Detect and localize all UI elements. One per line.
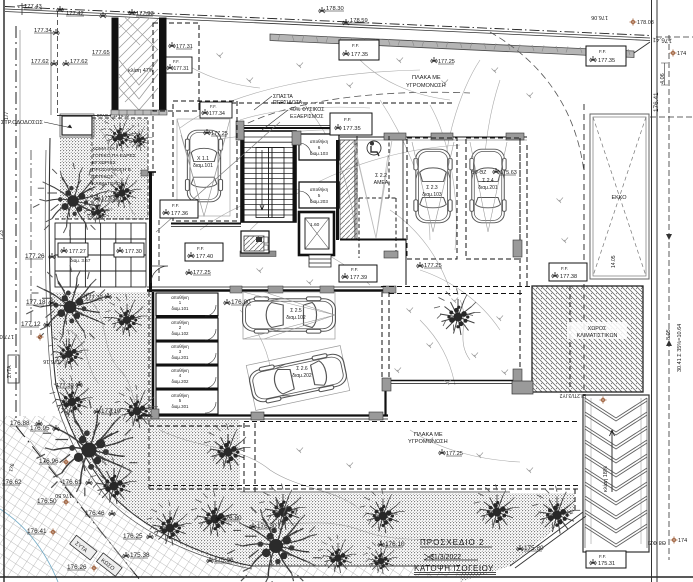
svg-text:διαμ.102: διαμ.102 — [286, 315, 306, 321]
svg-text:177.35: 177.35 — [598, 58, 615, 64]
svg-text:Σ 2.4: Σ 2.4 — [482, 178, 494, 184]
svg-text:177.36: 177.36 — [171, 211, 188, 217]
svg-text:177.27: 177.27 — [69, 249, 86, 255]
svg-text:176.41: 176.41 — [653, 92, 660, 112]
svg-text:Σ 2.6: Σ 2.6 — [296, 366, 308, 372]
svg-text:Θ8 ΦΖΙ: Θ8 ΦΖΙ — [647, 539, 666, 545]
svg-text:F.F.: F.F. — [352, 43, 359, 48]
svg-text:F.F.: F.F. — [344, 117, 351, 123]
svg-text:176.41: 176.41 — [652, 36, 672, 44]
svg-text:174: 174 — [677, 51, 686, 57]
svg-text:F.F.: F.F. — [351, 267, 358, 272]
svg-text:176.50: 176.50 — [55, 492, 72, 498]
svg-text:177.34: 177.34 — [209, 111, 225, 117]
svg-text:177.31: 177.31 — [174, 66, 190, 72]
svg-text:ΧΩΡΟΣ: ΧΩΡΟΣ — [588, 326, 607, 332]
svg-text:5: 5 — [318, 193, 321, 198]
svg-text:F.F.: F.F. — [599, 554, 606, 559]
svg-text:7.23: 7.23 — [0, 230, 5, 240]
svg-text:Σ 2.3: Σ 2.3 — [426, 185, 438, 191]
svg-text:ΧΩΜΑ ΓΙΑ: ΧΩΜΑ ΓΙΑ — [92, 146, 115, 152]
svg-text:177.40: 177.40 — [196, 254, 213, 260]
svg-text:174: 174 — [678, 538, 687, 544]
svg-text:διαμ.202: διαμ.202 — [292, 373, 312, 379]
svg-text:κλίση 47%: κλίση 47% — [128, 68, 154, 74]
svg-text:1.60: 1.60 — [310, 222, 320, 228]
svg-text:αποθήκη: αποθήκη — [310, 186, 329, 192]
svg-text:διαμ.101: διαμ.101 — [193, 163, 213, 169]
svg-text:κλίση 18%: κλίση 18% — [603, 466, 609, 492]
svg-text:ΕΙ.2ΤΙ/3.ΙΥ2: ΕΙ.2ΤΙ/3.ΙΥ2 — [559, 392, 586, 398]
svg-text:177.00: 177.00 — [0, 333, 14, 339]
svg-text:ΥΓΡΟΜΟΝΩΣΗ: ΥΓΡΟΜΟΝΩΣΗ — [408, 439, 448, 445]
svg-text:αποθήκη: αποθήκη — [310, 138, 329, 144]
svg-text:F.F.: F.F. — [561, 266, 568, 271]
svg-text:30.41 Σ 35%=10.64: 30.41 Σ 35%=10.64 — [677, 324, 683, 372]
svg-text:διαμ.301: διαμ.301 — [171, 404, 189, 409]
svg-text:176.06: 176.06 — [591, 14, 608, 20]
svg-text:14.05: 14.05 — [611, 255, 617, 268]
svg-text:Θ9·ΘΖ: Θ9·ΘΖ — [471, 170, 486, 176]
svg-text:διαμ. 3.67: διαμ. 3.67 — [70, 258, 91, 263]
svg-text:F.F.: F.F. — [173, 59, 180, 64]
svg-text:ΣΥΤΑ: ΣΥΤΑ — [7, 365, 13, 378]
svg-text:F.F.: F.F. — [210, 104, 217, 109]
svg-text:διαμ.102: διαμ.102 — [171, 331, 189, 336]
svg-text:40% ΦΥΣΙΚΟΣ: 40% ΦΥΣΙΚΟΣ — [290, 107, 324, 113]
svg-text:ΥΓΡΟΜΟΝΩΣΗ: ΥΓΡΟΜΟΝΩΣΗ — [406, 83, 446, 89]
svg-text:Σ 2.2: Σ 2.2 — [375, 173, 387, 179]
svg-text:ΠΕΡΣΙΔΩΤΑ: ΠΕΡΣΙΔΩΤΑ — [273, 100, 302, 106]
svg-text:177.39: 177.39 — [350, 275, 367, 281]
svg-text:διαμ.103: διαμ.103 — [422, 192, 442, 198]
svg-text:ΚΑΤΟΨΗ ΙΣΟΓΕΙΟΥ: ΚΑΤΟΨΗ ΙΣΟΓΕΙΟΥ — [414, 564, 494, 573]
svg-text:διαμ.201: διαμ.201 — [171, 355, 189, 360]
svg-text:ΠΛΑΚΑ ΜΕ: ΠΛΑΚΑ ΜΕ — [412, 75, 441, 81]
svg-text:διαμ.202: διαμ.202 — [171, 379, 189, 384]
svg-text:ΕΞΑΕΡΙΣΜΟΣ: ΕΞΑΕΡΙΣΜΟΣ — [290, 114, 323, 120]
svg-text:177.30: 177.30 — [125, 249, 142, 255]
svg-text:διαμ.101: διαμ.101 — [171, 306, 189, 311]
svg-text:178.08: 178.08 — [637, 20, 654, 26]
svg-text:ΕΚΚΟ: ΕΚΚΟ — [611, 195, 627, 201]
svg-text:Χ 1.1: Χ 1.1 — [197, 156, 209, 162]
svg-text:177.38: 177.38 — [560, 274, 577, 280]
svg-text:ΤΟΠΙΚΟ ΠΑ ΕΔΡΕΣ: ΤΟΠΙΚΟ ΠΑ ΕΔΡΕΣ — [92, 153, 136, 159]
svg-text:ΠΛΑΚΑ ΜΕ: ΠΛΑΚΑ ΜΕ — [414, 432, 443, 438]
svg-text:8.05: 8.05 — [666, 329, 672, 340]
svg-text:177.35: 177.35 — [351, 52, 368, 58]
svg-text:177.35: 177.35 — [343, 126, 361, 132]
svg-text:Σ 2.5: Σ 2.5 — [290, 308, 302, 314]
svg-text:175.31: 175.31 — [598, 561, 615, 567]
svg-text:F.F.: F.F. — [599, 49, 606, 54]
svg-text:διαμ.201: διαμ.201 — [478, 185, 498, 191]
svg-text:διαμ.203: διαμ.203 — [310, 199, 328, 204]
svg-text:6: 6 — [318, 145, 321, 150]
svg-text:ΑΜΕΑ: ΑΜΕΑ — [374, 180, 389, 186]
svg-text:177: 177 — [4, 111, 10, 120]
svg-text:ΕΓΧΩΡΙΕΣ: ΕΓΧΩΡΙΕΣ — [92, 160, 116, 166]
svg-text:ΠΡΟΣΧΕΔΙΟ 2: ΠΡΟΣΧΕΔΙΟ 2 — [420, 538, 484, 547]
svg-text:διαμ.103: διαμ.103 — [310, 151, 328, 156]
svg-text:F.F.: F.F. — [197, 246, 204, 251]
svg-text:F.F.: F.F. — [172, 203, 179, 208]
svg-text:ΠΡΟΣΑΡΜΟΓΗ Β: ΠΡΟΣΑΡΜΟΓΗ Β — [92, 167, 131, 173]
svg-text:4.06: 4.06 — [660, 73, 666, 84]
svg-text:176.16: 176.16 — [43, 358, 60, 364]
svg-text:ΚΛΙΜΑΤΙΣΤΙΚΩΝ: ΚΛΙΜΑΤΙΣΤΙΚΩΝ — [577, 333, 618, 339]
